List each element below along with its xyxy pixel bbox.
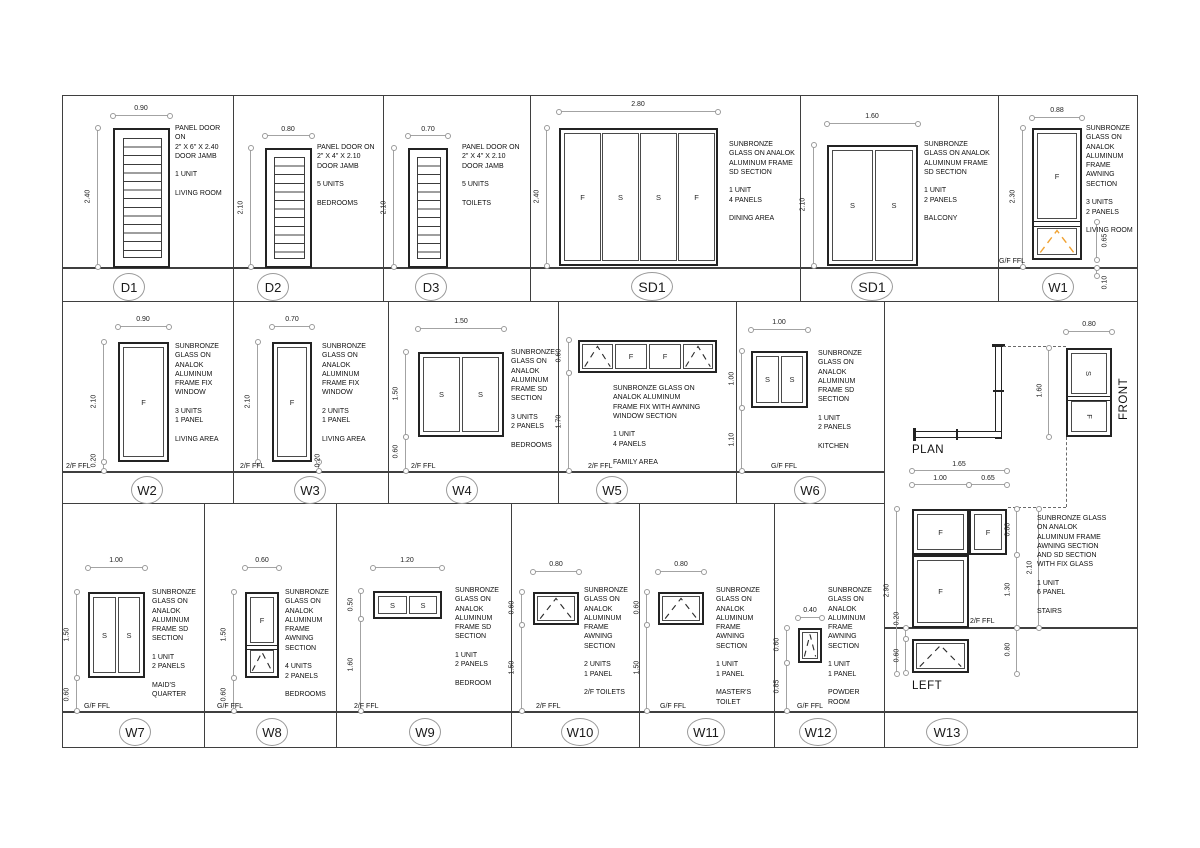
sd1a-height-dim: 2.40 (534, 186, 541, 208)
w13-left-top-right-panel: F (969, 509, 1007, 555)
sd1a-panel: F (678, 133, 715, 261)
sd1b-width-dim: 1.60 (852, 113, 892, 120)
w10-ffl-label: 2/F FFL (536, 703, 561, 710)
sd1a-panel-letter: S (618, 193, 623, 202)
w5-notes: SUNBRONZE GLASS ON ANALOK ALUMINUM FRAME… (613, 384, 725, 468)
awning-swing-symbol (251, 651, 273, 672)
d2-door-drawing (265, 148, 312, 268)
w4-notes: SUNBRONZE GLASS ON ANALOK ALUMINUM FRAME… (511, 348, 558, 450)
w1-tag-badge: W1 (1042, 273, 1074, 301)
w9-ffl-label: 2/F FFL (354, 703, 379, 710)
sd1a-notes: SUNBRONZE GLASS ON ANALOK ALUMINUM FRAME… (729, 140, 797, 224)
row1-divider (998, 95, 999, 302)
door-window-schedule-sheet: 0.90 2.40 PANEL DOOR ON 2" X 6" X 2.40 D… (0, 0, 1200, 848)
w8-height-dim-line (233, 592, 234, 678)
w8-notes: SUNBRONZE GLASS ON ANALOK ALUMINUM FRAME… (285, 588, 335, 700)
w2-sill-dim: 0.20 (91, 450, 98, 472)
sd1b-notes: SUNBRONZE GLASS ON ANALOK ALUMINUM FRAME… (924, 140, 996, 224)
sd1b-sliding-door-drawing: S S (827, 145, 918, 266)
w10-width-dim: 0.80 (536, 561, 576, 568)
w1-below-ffl-dim: 0.10 (1102, 272, 1109, 294)
awning-swing-symbol (803, 633, 817, 658)
w8-width-dim: 0.60 (242, 557, 282, 564)
w12-width-dim: 0.40 (790, 607, 830, 614)
sd1b-height-dim-line (813, 145, 814, 266)
sd1a-panel: F (564, 133, 601, 261)
w13-total-height-dim: 2.90 (884, 580, 891, 602)
w13-projection-dashed-line (1066, 437, 1067, 507)
w6-width-dim-line (751, 329, 808, 330)
w11-window-drawing (658, 592, 704, 625)
w13-width2-dim-line (969, 484, 1007, 485)
w10-awning-panel (537, 596, 575, 621)
w9-panel: S (378, 596, 407, 614)
w13-width1-dim-line (912, 484, 969, 485)
w6-panel: S (781, 356, 803, 403)
w13-plan-wall-vertical (995, 346, 1002, 439)
w13-front-panel: S (1071, 353, 1107, 394)
w5-awning-panel (683, 344, 713, 369)
w13-width1-dim: 1.00 (920, 475, 960, 482)
w1-fix-panel: F (1037, 133, 1077, 219)
row2-divider (388, 302, 389, 504)
d1-width-dim-line (113, 115, 170, 116)
w1-ffl-label: G/F FFL (999, 258, 1025, 265)
w11-width-dim: 0.80 (661, 561, 701, 568)
w11-height-dim: 0.60 (634, 597, 641, 619)
w7-sill-dim: 0.60 (64, 684, 71, 706)
table-right-border (1137, 95, 1138, 748)
w11-width-dim-line (658, 571, 704, 572)
w6-panel: S (756, 356, 779, 403)
w7-width-dim-line (88, 567, 145, 568)
w5-height-dim: 0.60 (556, 345, 563, 367)
w6-ffl-label: G/F FFL (771, 463, 797, 470)
w6-sill-dim: 1.10 (729, 429, 736, 451)
w7-notes: SUNBRONZE GLASS ON ANALOK ALUMINUM FRAME… (152, 588, 202, 700)
w1-panel-letter: F (1055, 172, 1060, 181)
w8-awning-panel (250, 650, 274, 673)
w2-sill-dim-line (103, 462, 104, 471)
w9-width-dim: 1.20 (387, 557, 427, 564)
w12-ffl-label: G/F FFL (797, 703, 823, 710)
w1-width-dim: 0.88 (1037, 107, 1077, 114)
w3-panel-letter: F (290, 398, 295, 407)
d3-width-dim: 0.70 (408, 126, 448, 133)
w8-height-dim: 1.50 (221, 624, 228, 646)
w13-total-width-dim-line (912, 470, 1007, 471)
w1-height-dim: 2.30 (1010, 186, 1017, 208)
w12-width-dim-line (798, 617, 822, 618)
w11-awning-panel (662, 596, 700, 621)
w12-sill-dim: 0.85 (774, 676, 781, 698)
w4-panel: S (423, 357, 460, 432)
w9-window-drawing: S S (373, 591, 442, 619)
w1-width-dim-line (1032, 117, 1082, 118)
w7-panel: S (118, 597, 140, 673)
w13-left-panel: F (917, 560, 964, 623)
w5-panel-letter: F (663, 352, 668, 361)
d1-height-dim: 2.40 (85, 186, 92, 208)
w8-ffl-label: G/F FFL (217, 703, 243, 710)
d2-height-dim-line (250, 148, 251, 267)
w13-tag-badge: W13 (926, 718, 968, 746)
w13-below-ffl-dim: 0.80 (1005, 639, 1012, 661)
w3-height-dim-line (257, 342, 258, 462)
w13-notes: SUNBRONZE GLASS ON ANALOK ALUMINUM FRAME… (1037, 514, 1137, 616)
d3-tag-badge: D3 (415, 273, 447, 301)
w1-below-ffl-dim-line (1096, 268, 1097, 276)
w13-left-panel: F (974, 514, 1002, 550)
sd1a-width-dim: 2.80 (618, 101, 658, 108)
w5-panel-letter: F (629, 352, 634, 361)
w13-left-awning-panel (912, 639, 969, 673)
w13-plan-mullion-tick (956, 429, 958, 440)
d3-width-dim-line (408, 135, 448, 136)
w13-left-panel-letter: F (938, 528, 943, 537)
w13-plan-end-cap (913, 428, 916, 441)
w4-height-dim-line (405, 352, 406, 437)
w5-fix-panel: F (649, 344, 681, 369)
w9-sill-dim: 1.60 (348, 654, 355, 676)
w9-panel-letter: S (420, 601, 425, 610)
awning-swing-symbol (1038, 229, 1076, 254)
sd1b-panel-letter: S (850, 201, 855, 210)
w13-left-panel: F (917, 514, 964, 550)
d1-width-dim: 0.90 (121, 105, 161, 112)
w13-below-ffl-dim-line (1016, 628, 1017, 674)
w13-mid-dim-line (1016, 555, 1017, 628)
w2-width-dim: 0.90 (123, 316, 163, 323)
table-left-border (62, 95, 63, 748)
w11-tag-badge: W11 (687, 718, 725, 746)
w4-width-dim: 1.50 (441, 318, 481, 325)
awning-swing-symbol (663, 597, 699, 620)
d3-height-dim: 2.10 (381, 197, 388, 219)
w7-panel: S (93, 597, 116, 673)
w9-notes: SUNBRONZE GLASS ON ANALOK ALUMINUM FRAME… (455, 586, 509, 688)
awning-swing-symbol (538, 597, 574, 620)
awning-swing-symbol (917, 644, 964, 668)
w9-sill-dim-line (360, 619, 361, 711)
w9-height-dim: 0.50 (348, 594, 355, 616)
w1-transom-divider (1034, 221, 1080, 227)
sd1a-panel-letter: F (580, 193, 585, 202)
w9-panel-letter: S (390, 601, 395, 610)
w3-notes: SUNBRONZE GLASS ON ANALOK ALUMINUM FRAME… (322, 342, 384, 444)
w13-front-panel: F (1071, 401, 1107, 432)
w12-notes: SUNBRONZE GLASS ON ANALOK ALUMINUM FRAME… (828, 586, 880, 707)
w11-sill-dim-line (646, 625, 647, 711)
w4-sill-dim: 0.60 (393, 441, 400, 463)
w8-panel-letter: F (260, 616, 265, 625)
w13-awning-height-dim-line (905, 639, 906, 673)
w8-window-drawing: F (245, 592, 279, 678)
row1-ffl-line (62, 267, 1138, 269)
w8-tag-badge: W8 (256, 718, 288, 746)
w4-panel-letter: S (478, 390, 483, 399)
w11-height-dim-line (646, 592, 647, 625)
w13-top-row-dim-line (1016, 509, 1017, 555)
w9-panel: S (409, 596, 437, 614)
w6-height-dim-line (741, 351, 742, 408)
sd1b-width-dim-line (827, 123, 918, 124)
w4-window-drawing: S S (418, 352, 504, 437)
d1-tag-badge: D1 (113, 273, 145, 301)
table-bottom-border (62, 747, 1138, 748)
w7-window-drawing: S S (88, 592, 145, 678)
sd1a-panel-letter: S (656, 193, 661, 202)
w13-plan-mullion-tick (993, 390, 1004, 392)
w2-panel-letter: F (141, 398, 146, 407)
d1-notes: PANEL DOOR ON 2" X 6" X 2.40 DOOR JAMB 1… (175, 124, 231, 198)
d2-door-slats (274, 157, 305, 259)
w13-plan-label: PLAN (912, 444, 944, 456)
sd1a-tag-badge: SD1 (631, 272, 673, 301)
sd1a-width-dim-line (559, 111, 718, 112)
w13-awning-pane (916, 643, 965, 669)
w5-height-dim-line (568, 340, 569, 373)
row1-divider (233, 95, 234, 302)
w7-width-dim: 1.00 (96, 557, 136, 564)
w13-left-panel-letter: F (986, 528, 991, 537)
w8-width-dim-line (245, 567, 279, 568)
awning-swing-symbol (583, 345, 612, 368)
w1-awning-panel (1037, 228, 1077, 255)
row2-band-bottom (62, 503, 885, 504)
w4-height-dim: 1.50 (393, 383, 400, 405)
row2-divider (233, 302, 234, 504)
w5-ffl-label: 2/F FFL (588, 463, 613, 470)
row3-divider (204, 504, 205, 748)
w10-window-drawing (533, 592, 579, 625)
w13-gap-dim: 0.20 (894, 608, 901, 630)
w1-height-dim-line (1022, 128, 1023, 267)
w3-window-drawing: F (272, 342, 312, 462)
w6-tag-badge: W6 (794, 476, 826, 504)
w13-left-middle-panel: F (912, 555, 969, 628)
sd1a-sliding-door-drawing: F S S F (559, 128, 718, 266)
w7-tag-badge: W7 (119, 718, 151, 746)
w9-height-dim-line (360, 591, 361, 619)
w2-height-dim: 2.10 (91, 391, 98, 413)
w7-height-dim-line (76, 592, 77, 678)
awning-swing-symbol (684, 345, 712, 368)
w1-window-drawing: F (1032, 128, 1082, 260)
w6-height-dim: 1.00 (729, 368, 736, 390)
w12-height-dim-line (786, 628, 787, 663)
w7-height-dim: 1.50 (64, 624, 71, 646)
row1-divider (530, 95, 531, 302)
w13-column-divider (884, 302, 885, 748)
w11-sill-dim: 1.50 (634, 657, 641, 679)
row1-band-bottom (62, 301, 1138, 302)
w6-panel-letter: S (765, 375, 770, 384)
d3-door-drawing (408, 148, 448, 268)
sd1b-panel-letter: S (891, 201, 896, 210)
w7-panel-letter: S (102, 631, 107, 640)
w12-awning-panel (802, 632, 818, 659)
w5-fix-panel: F (615, 344, 647, 369)
w13-top-row-dim: 0.80 (1005, 519, 1012, 541)
w4-tag-badge: W4 (446, 476, 478, 504)
w2-fix-panel: F (123, 347, 164, 457)
w13-upper-dim: 2.10 (1027, 557, 1034, 579)
w12-tag-badge: W12 (799, 718, 837, 746)
w4-panel: S (462, 357, 499, 432)
w5-awning-panel (582, 344, 613, 369)
w13-front-height-dim: 1.60 (1037, 380, 1044, 402)
sd1b-tag-badge: SD1 (851, 272, 893, 301)
w1-notes: SUNBRONZE GLASS ON ANALOK ALUMINUM FRAME… (1086, 124, 1136, 236)
w5-sill-dim-line (568, 373, 569, 471)
w13-projection-dashed-line (1003, 346, 1066, 347)
d2-width-dim-line (265, 135, 312, 136)
row2-divider (736, 302, 737, 504)
w3-fix-panel: F (277, 347, 307, 457)
d1-door-drawing (113, 128, 170, 268)
w10-notes: SUNBRONZE GLASS ON ANALOK ALUMINUM FRAME… (584, 586, 636, 698)
w7-panel-letter: S (126, 631, 131, 640)
w13-ffl-label: 2/F FFL (970, 618, 995, 625)
w13-front-window-drawing: S F (1066, 348, 1112, 437)
w10-height-dim-line (521, 592, 522, 625)
w6-notes: SUNBRONZE GLASS ON ANALOK ALUMINUM FRAME… (818, 349, 878, 451)
w12-height-dim: 0.60 (774, 634, 781, 656)
w6-sill-dim-line (741, 408, 742, 471)
sd1b-panel: S (875, 150, 913, 261)
w8-fix-panel: F (250, 597, 274, 643)
w3-tag-badge: W3 (294, 476, 326, 504)
sd1a-panel: S (602, 133, 639, 261)
d1-height-dim-line (97, 128, 98, 267)
w13-total-width-dim: 1.65 (939, 461, 979, 468)
w12-window-drawing (798, 628, 822, 663)
w13-width2-dim: 0.65 (968, 475, 1008, 482)
row3-divider (639, 504, 640, 748)
w4-panel-letter: S (439, 390, 444, 399)
w13-front-height-dim-line (1048, 348, 1049, 437)
d2-notes: PANEL DOOR ON 2" X 4" X 2.10 DOOR JAMB 5… (317, 143, 379, 208)
w13-left-panel-letter: F (938, 587, 943, 596)
w13-mid-dim: 1.30 (1005, 579, 1012, 601)
w5-tag-badge: W5 (596, 476, 628, 504)
w10-width-dim-line (533, 571, 579, 572)
d3-notes: PANEL DOOR ON 2" X 4" X 2.10 DOOR JAMB 5… (462, 143, 526, 208)
sd1b-panel: S (832, 150, 873, 261)
w13-front-width-dim: 0.80 (1069, 321, 1109, 328)
w7-ffl-label: G/F FFL (84, 703, 110, 710)
d2-width-dim: 0.80 (268, 126, 308, 133)
w6-window-drawing: S S (751, 351, 808, 408)
w12-sill-dim-line (786, 663, 787, 711)
w10-sill-dim-line (521, 625, 522, 711)
row2-divider (558, 302, 559, 504)
sd1b-height-dim: 2.10 (800, 194, 807, 216)
w3-ffl-label: 2/F FFL (240, 463, 265, 470)
w7-sill-dim-line (76, 678, 77, 711)
w2-tag-badge: W2 (131, 476, 163, 504)
w13-front-panel-letter: S (1084, 371, 1093, 376)
w13-front-label: FRONT (1118, 378, 1130, 420)
w3-width-dim: 0.70 (272, 316, 312, 323)
w4-ffl-label: 2/F FFL (411, 463, 436, 470)
w13-awning-height-dim: 0.60 (894, 645, 901, 667)
w2-ffl-label: 2/F FFL (66, 463, 91, 470)
sd1a-height-dim-line (546, 128, 547, 266)
d2-height-dim: 2.10 (238, 197, 245, 219)
w4-sill-dim-line (405, 437, 406, 471)
w5-sill-dim: 1.70 (556, 411, 563, 433)
w11-ffl-label: G/F FFL (660, 703, 686, 710)
w9-width-dim-line (373, 567, 442, 568)
d3-door-slats (417, 157, 441, 259)
w13-left-label: LEFT (912, 680, 942, 692)
w2-height-dim-line (103, 342, 104, 462)
w4-width-dim-line (418, 328, 504, 329)
w10-height-dim: 0.60 (509, 597, 516, 619)
w3-height-dim: 2.10 (245, 391, 252, 413)
w6-width-dim: 1.00 (759, 319, 799, 326)
d1-door-slats (123, 138, 162, 258)
w5-window-drawing: F F (578, 340, 717, 373)
row3-divider (511, 504, 512, 748)
row2-ffl-line (62, 471, 885, 473)
w9-tag-badge: W9 (409, 718, 441, 746)
w2-window-drawing: F (118, 342, 169, 462)
w13-plan-wall-horizontal (915, 431, 1002, 438)
sd1a-panel: S (640, 133, 677, 261)
w2-width-dim-line (118, 326, 169, 327)
w13-front-panel-letter: F (1085, 414, 1094, 419)
w6-panel-letter: S (789, 375, 794, 384)
row3-divider (336, 504, 337, 748)
w2-notes: SUNBRONZE GLASS ON ANALOK ALUMINUM FRAME… (175, 342, 231, 444)
d2-tag-badge: D2 (257, 273, 289, 301)
w11-notes: SUNBRONZE GLASS ON ANALOK ALUMINUM FRAME… (716, 586, 772, 707)
w13-front-width-dim-line (1066, 331, 1112, 332)
row3-divider (774, 504, 775, 748)
d3-height-dim-line (393, 148, 394, 267)
w13-left-top-panel: F (912, 509, 969, 555)
w3-width-dim-line (272, 326, 312, 327)
w10-sill-dim: 1.50 (509, 657, 516, 679)
sd1a-panel-letter: F (694, 193, 699, 202)
w3-sill-dim: 0.20 (315, 450, 322, 472)
row3-ffl-line (62, 711, 1138, 713)
w10-tag-badge: W10 (561, 718, 599, 746)
table-top-border (62, 95, 1138, 96)
